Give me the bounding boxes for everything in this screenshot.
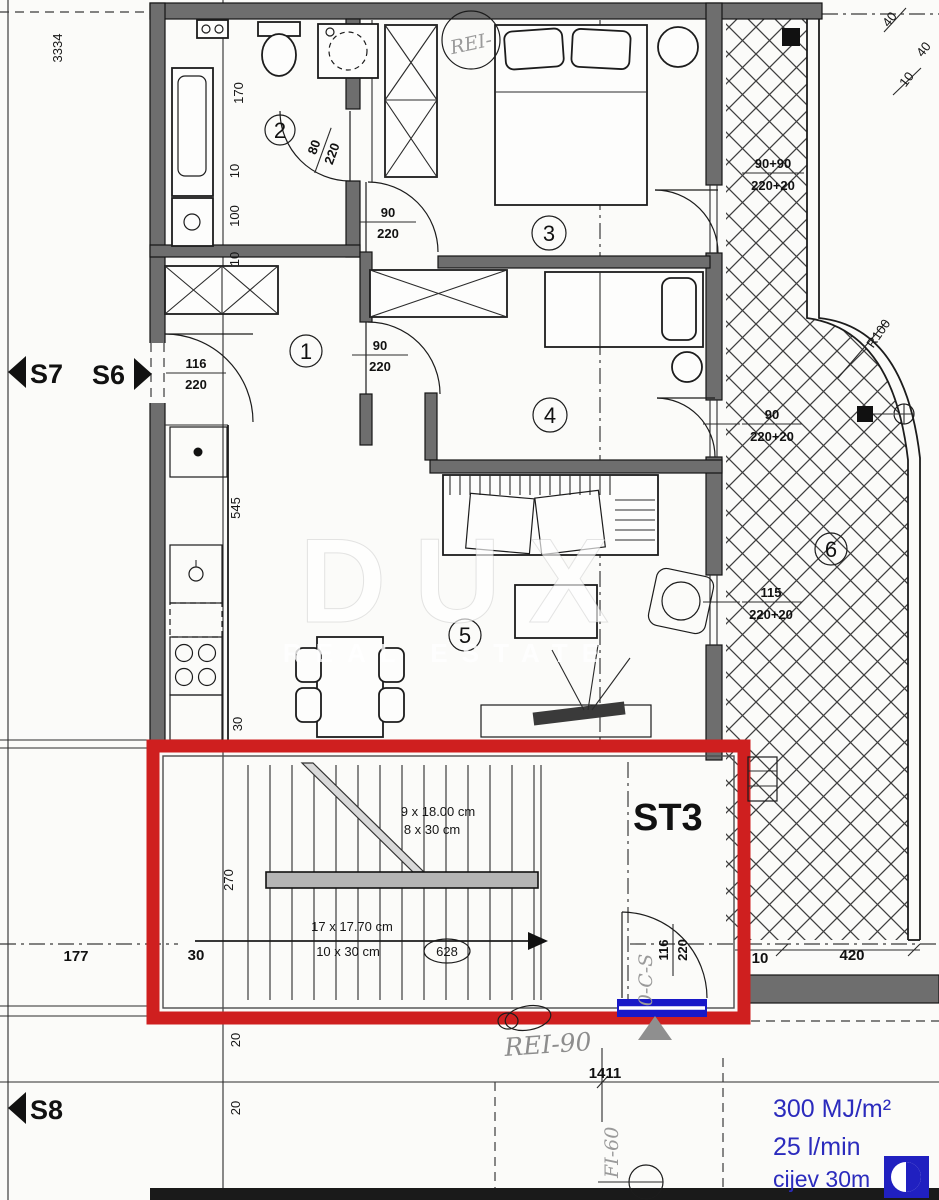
dishwasher xyxy=(170,603,222,637)
flow-label: 25 l/min xyxy=(773,1133,861,1161)
dim-1411: 1411 xyxy=(589,1065,622,1082)
kitchen xyxy=(165,425,228,742)
svg-text:90: 90 xyxy=(381,205,395,220)
vanity xyxy=(172,198,213,246)
wall-east-2 xyxy=(706,253,722,400)
s7-arrow-icon xyxy=(8,356,26,388)
dim-10c: 10 xyxy=(896,69,917,90)
watermark: DUX REAL ESTATE xyxy=(283,514,637,668)
stove xyxy=(170,637,222,695)
flight1-riser: 9 x 18.00 cm xyxy=(401,804,475,819)
watermark-subtitle: REAL ESTATE xyxy=(283,638,613,668)
entrance-opening xyxy=(149,343,166,403)
column-mid xyxy=(857,406,873,422)
pillow-left xyxy=(504,28,565,70)
wc-bowl xyxy=(262,34,296,76)
room4-door-label: 90 220 xyxy=(352,338,408,374)
dim-177: 177 xyxy=(63,948,88,965)
rei90-label: REI-90 xyxy=(502,1027,592,1062)
wall-hall-stub2 xyxy=(360,394,372,445)
wall-east-1 xyxy=(706,3,722,185)
dim-270: 270 xyxy=(221,869,236,891)
flight2-riser: 17 x 17.70 cm xyxy=(311,919,393,934)
dim-100: 100 xyxy=(227,205,242,227)
svg-text:220: 220 xyxy=(377,226,399,241)
room3-terrace-door-arc xyxy=(655,190,718,253)
dim-10t: 10 xyxy=(752,950,769,967)
stool xyxy=(672,352,702,382)
pillow-right xyxy=(571,29,631,70)
column-top xyxy=(782,28,800,46)
svg-text:90: 90 xyxy=(373,338,387,353)
duct-label: 0-C-S xyxy=(635,954,657,1006)
dim-30k: 30 xyxy=(230,717,245,731)
stairwell xyxy=(153,746,777,1040)
svg-text:116: 116 xyxy=(656,940,671,961)
flight2-tread: 10 x 30 cm xyxy=(316,944,380,959)
hydrant-note: 300 MJ/m² 25 l/min cijev 30m xyxy=(773,1095,929,1198)
dim-20a: 20 xyxy=(228,1033,243,1047)
dim-40a: 40 xyxy=(879,9,900,30)
chair-4 xyxy=(379,688,404,722)
entrance-door-label: 116 220 xyxy=(166,356,226,392)
chair-2 xyxy=(296,688,321,722)
side-table xyxy=(647,567,716,636)
room4-terrace-door-arc xyxy=(657,398,715,457)
svg-text:116: 116 xyxy=(186,356,207,371)
dim-545: 545 xyxy=(228,497,243,519)
room-4: 4 xyxy=(544,403,556,428)
watermark-title: DUX xyxy=(299,514,636,648)
floor-plan-page: S7 S6 S8 ST3 1 2 3 4 5 6 116 220 80 220 xyxy=(0,0,939,1200)
terrace-parapet xyxy=(748,975,939,1003)
entrance-door-arc xyxy=(165,334,253,422)
kitchen-sink xyxy=(170,545,222,603)
stair-arrow xyxy=(528,932,548,950)
pipe-label: cijev 30m xyxy=(773,1166,870,1192)
low-cabinet xyxy=(170,695,222,740)
st3-label: ST3 xyxy=(633,797,703,839)
stair-landing xyxy=(266,872,538,888)
svg-text:115: 115 xyxy=(761,585,782,600)
s8-label: S8 xyxy=(30,1095,63,1125)
dim-20b: 20 xyxy=(228,1101,243,1115)
svg-text:80: 80 xyxy=(304,138,323,157)
s6-label: S6 xyxy=(92,360,125,390)
rei-top-label: REI- xyxy=(447,29,494,59)
s8-arrow-icon xyxy=(8,1092,26,1124)
room-3: 3 xyxy=(543,221,555,246)
bedside-table xyxy=(658,27,698,67)
dim-10b: 10 xyxy=(227,252,242,266)
stair-going: 628 xyxy=(436,944,458,959)
radius-label: R100 xyxy=(863,316,893,350)
room4-door-arc xyxy=(368,322,440,394)
dim-40b: 40 xyxy=(913,39,934,60)
heat-load-label: 300 MJ/m² xyxy=(773,1095,891,1123)
floor-plan-drawing: S7 S6 S8 ST3 1 2 3 4 5 6 116 220 80 220 xyxy=(0,0,939,1200)
dim-30s: 30 xyxy=(188,947,205,964)
svg-text:220: 220 xyxy=(185,377,207,392)
room-6: 6 xyxy=(825,537,837,562)
stair-annotations: 9 x 18.00 cm 8 x 30 cm 17 x 17.70 cm 10 … xyxy=(311,804,657,1006)
wall-room4-south xyxy=(430,460,722,473)
hydrant-icon xyxy=(884,1156,929,1198)
dim-10a: 10 xyxy=(227,164,242,178)
wall-room4-west xyxy=(425,393,437,460)
svg-text:220+20: 220+20 xyxy=(749,607,793,622)
svg-text:220: 220 xyxy=(321,141,343,167)
room3-door-arc xyxy=(368,182,438,252)
fi60-label: FI-60 xyxy=(601,1127,623,1179)
svg-text:90: 90 xyxy=(765,407,779,422)
room3-door-label: 90 220 xyxy=(360,205,416,241)
wall-room3-room4 xyxy=(438,256,710,268)
room-1: 1 xyxy=(300,339,312,364)
wall-east-3 xyxy=(706,457,722,575)
shaft-box xyxy=(385,25,437,177)
dim-420: 420 xyxy=(839,947,864,964)
dim-3334: 3334 xyxy=(50,34,65,63)
bathroom-door-label: 80 220 xyxy=(299,122,347,179)
svg-text:220+20: 220+20 xyxy=(750,429,794,444)
bedroom4-furniture xyxy=(545,272,703,382)
dim-170: 170 xyxy=(231,82,246,104)
flight1-tread: 8 x 30 cm xyxy=(404,822,460,837)
svg-text:220: 220 xyxy=(675,939,690,961)
pillow xyxy=(662,278,696,340)
room-2: 2 xyxy=(274,118,286,143)
svg-text:220+20: 220+20 xyxy=(751,178,795,193)
svg-text:220: 220 xyxy=(369,359,391,374)
stair-door-label: 116 220 xyxy=(656,924,690,976)
svg-text:90+90: 90+90 xyxy=(755,156,792,171)
bedroom3-furniture xyxy=(495,25,698,205)
s7-label: S7 xyxy=(30,359,63,389)
